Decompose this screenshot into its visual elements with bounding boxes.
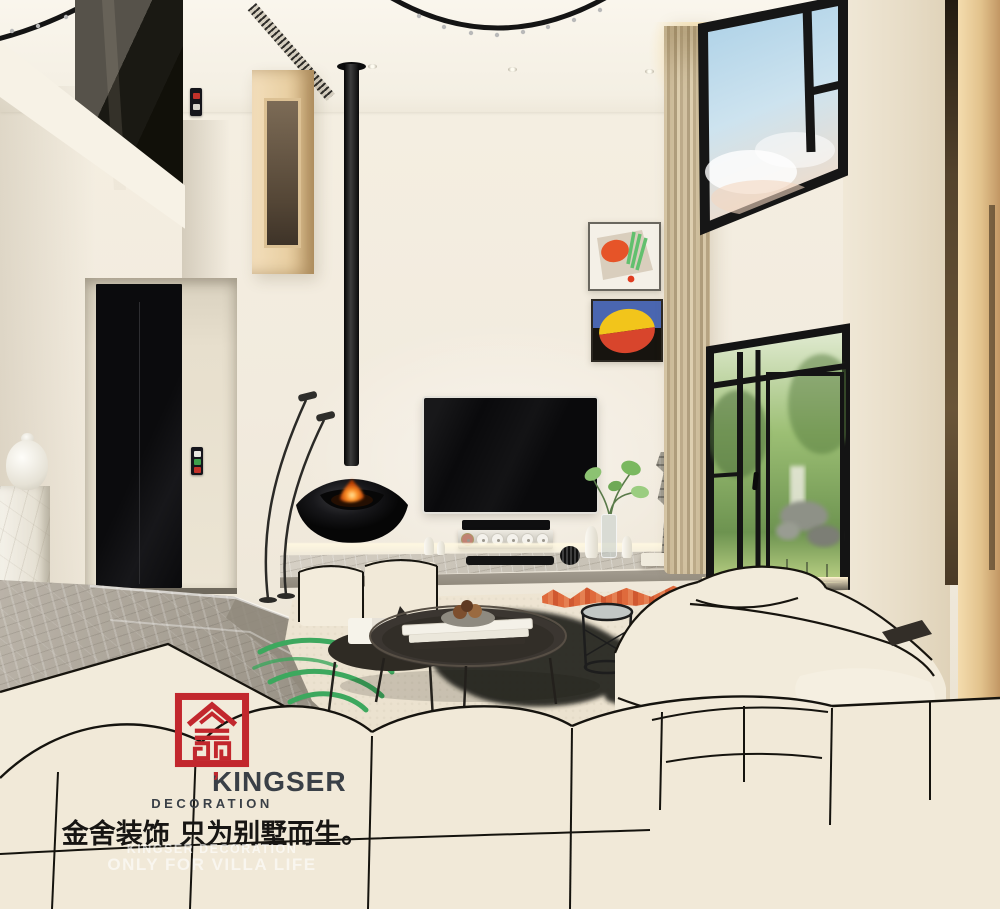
call-button xyxy=(193,104,200,110)
lamp-head xyxy=(298,391,318,402)
plant-stems xyxy=(593,472,637,514)
casement-rail xyxy=(710,474,740,476)
elevator-call-panel-upper xyxy=(190,88,202,116)
recessed-spotlight xyxy=(645,69,654,74)
wood-column-shadow-line xyxy=(989,205,995,570)
modular-sofa-foreground xyxy=(0,600,1000,909)
lamp-head xyxy=(316,411,336,422)
wood-niche-window xyxy=(252,70,314,274)
wood-niche-opening xyxy=(264,98,301,248)
abstract-artwork-top xyxy=(588,222,661,291)
call-button-green xyxy=(194,459,201,465)
recessed-spotlight xyxy=(368,64,377,69)
buddha-head-sculpture xyxy=(6,440,48,490)
call-button-red xyxy=(194,467,201,473)
elevator-door-seam xyxy=(139,302,140,584)
media-shelf-bar xyxy=(462,520,550,530)
recessed-spotlight xyxy=(508,67,517,72)
call-indicator-red xyxy=(193,93,200,99)
elevator-door xyxy=(96,284,182,588)
elevator-call-panel-lower xyxy=(191,447,203,475)
white-vase-small xyxy=(424,537,434,555)
plant-leaves xyxy=(582,458,650,499)
white-vase-small xyxy=(437,541,445,555)
wall-mounted-tv xyxy=(424,398,597,512)
call-button-white xyxy=(194,451,201,457)
abstract-artwork-bottom xyxy=(591,299,663,362)
tv-screen-reflection xyxy=(424,398,597,512)
window-mullion xyxy=(807,5,811,152)
sofa-module-row xyxy=(0,696,1000,909)
living-room-render: KINGSER’ DECORATION 金舍装饰 只为别墅而生。 KINGSER… xyxy=(0,0,1000,909)
potted-plant xyxy=(585,448,651,560)
art-red-dot xyxy=(628,276,635,283)
clerestory-window xyxy=(693,0,853,240)
